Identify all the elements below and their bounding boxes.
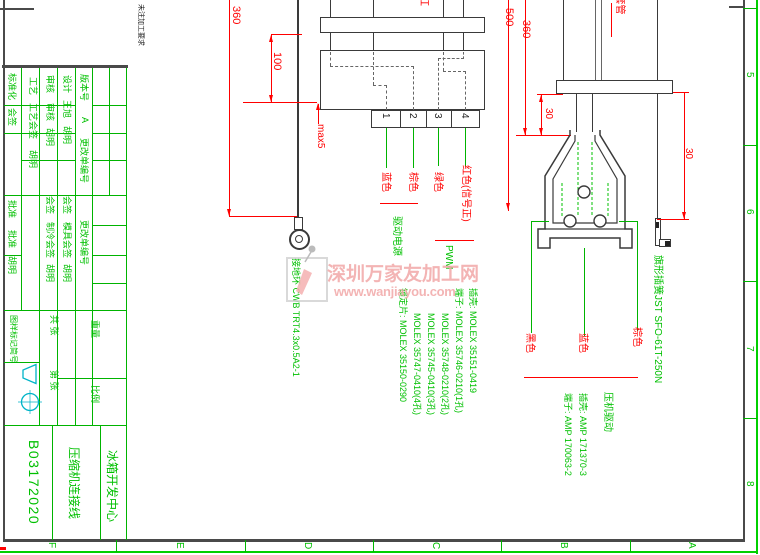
- drawing-number: B03172020: [27, 440, 41, 525]
- part-number: MOLEX 35747-0410(4孔): [412, 313, 421, 415]
- pin-number: 2: [407, 113, 417, 119]
- dim-label-30: 30: [683, 148, 693, 159]
- tb-total-sheets: 共 张: [49, 315, 58, 336]
- pin-divider: [451, 110, 452, 128]
- wire-color-label: 棕色: [631, 327, 641, 347]
- tb-countersign-label: 会签: [62, 196, 71, 214]
- sleeve-collar: [556, 80, 673, 94]
- part-number: 端子: AMP 170063-2: [563, 393, 572, 476]
- tb-h: [92, 283, 126, 284]
- tb-h: [57, 378, 126, 379]
- zone-letter: D: [302, 542, 312, 549]
- dim-line: [657, 219, 689, 220]
- part-number: MOLEX 35745-0410(3孔): [426, 313, 435, 415]
- routing-line: [438, 58, 439, 110]
- tb-v: [75, 68, 76, 425]
- projection-symbol-cone-icon: [18, 364, 42, 386]
- dim-label-360: 360: [230, 6, 241, 24]
- zone-number: 5: [744, 72, 754, 78]
- tb-design-label: 设计: [62, 75, 71, 93]
- zone-divider: [743, 8, 757, 9]
- routing-line: [386, 85, 387, 110]
- group-bracket: [435, 240, 474, 241]
- dim-arrow: [227, 209, 231, 216]
- routing-line: [330, 66, 414, 67]
- wire: [463, 33, 464, 51]
- lead: [386, 128, 387, 168]
- tb-sheet-no: 第 张: [49, 370, 58, 391]
- pin-number: 4: [459, 113, 469, 119]
- wire-color-label: 黑色: [524, 333, 534, 353]
- centering-tick-topright: [729, 6, 744, 8]
- routing-line: [443, 71, 466, 72]
- zone-number: 7: [744, 346, 754, 352]
- ground-wire: [297, 0, 299, 218]
- tb-name: 胡明: [7, 256, 16, 274]
- dim-line: [229, 216, 297, 217]
- tb-h: [4, 310, 126, 311]
- wire-color-label: 红色(信号正): [460, 165, 470, 222]
- tb-h: [92, 255, 126, 256]
- outer-border-right: [756, 0, 758, 554]
- tb-h: [92, 133, 126, 134]
- zone-number: 6: [744, 209, 754, 215]
- outer-border-bottom: [0, 551, 758, 553]
- watermark-text: 深圳万家友加工网: [327, 259, 479, 286]
- zone-letter: C: [430, 542, 440, 549]
- sleeve-inner-line: [595, 0, 596, 80]
- tb-h: [92, 225, 126, 226]
- routing-line: [443, 52, 444, 71]
- zone-divider: [630, 540, 631, 552]
- dim-line: [243, 102, 317, 103]
- wire: [373, 33, 374, 51]
- dim-arrow: [269, 35, 273, 42]
- dim-label-max5: max5: [315, 124, 325, 148]
- tb-v: [100, 425, 101, 540]
- zone-letter: F: [46, 542, 56, 548]
- tb-name: 胡明: [45, 128, 54, 146]
- dim-label-30: 30: [543, 108, 553, 119]
- frame-right: [743, 0, 745, 541]
- tb-cooling-countersign-label: 制冷会签: [45, 222, 54, 258]
- tb-approve-label: 批准: [7, 200, 16, 218]
- tb-name: 胡明: [62, 126, 71, 144]
- tb-h: [92, 160, 126, 161]
- wire: [443, 0, 444, 18]
- wire: [576, 94, 577, 132]
- dim-arrow: [539, 128, 543, 135]
- pin-divider: [400, 110, 401, 128]
- corner-mark: [0, 547, 6, 550]
- sleeve-inner-line: [601, 0, 602, 80]
- wire: [592, 94, 593, 132]
- dim-label-360: 360: [520, 20, 531, 38]
- group-label-compressor-drive: 压机驱动: [602, 392, 612, 432]
- routing-line: [438, 58, 464, 59]
- dim-label-100: 100: [271, 52, 282, 70]
- dim-line: [271, 34, 302, 35]
- part-number: 锁定片: MOLEX 35150-0290: [398, 288, 407, 402]
- dim-arrow: [682, 212, 686, 219]
- dim-arrow: [269, 95, 273, 102]
- tb-process-label: 工艺: [28, 77, 37, 95]
- label-leader: [611, 3, 612, 37]
- tb-weight-label: 重量: [90, 320, 99, 338]
- cad-drawing-sheet: 5 6 7 8 F E D C B A 标准化 会签 批准 批准 胡明 工艺 工…: [0, 0, 760, 555]
- process-note: 未注加工要求: [137, 4, 144, 46]
- dim-label-500: 500: [503, 8, 514, 26]
- lead: [413, 128, 414, 168]
- wire-color-label: 绿色: [432, 172, 442, 192]
- wire: [330, 33, 331, 51]
- zone-letter: B: [558, 542, 568, 549]
- tb-v: [126, 68, 127, 540]
- pin-divider: [426, 110, 427, 128]
- part-number: MOLEX 35748-0210(2孔): [440, 313, 449, 415]
- zone-divider: [743, 418, 757, 419]
- lead: [531, 221, 532, 333]
- wire-color-label: 蓝色: [577, 333, 587, 353]
- frame-bottom: [3, 539, 745, 542]
- dim-arrow: [539, 95, 543, 102]
- zone-divider: [743, 145, 757, 146]
- wire: [373, 0, 374, 18]
- routing-line: [373, 85, 387, 86]
- zone-divider: [373, 540, 374, 552]
- wire: [443, 33, 444, 51]
- org-name: 冰箱开发中心: [106, 450, 118, 522]
- tb-v: [52, 425, 53, 540]
- zone-divider: [245, 540, 246, 552]
- compressor-plug-housing: [536, 128, 638, 252]
- dim-line: [673, 92, 689, 93]
- pvc-sleeve-label: PVC套管: [614, 0, 624, 15]
- tb-v: [92, 68, 93, 425]
- lead: [531, 221, 549, 222]
- tb-name: 胡明: [28, 150, 37, 168]
- zone-divider: [116, 540, 117, 552]
- centering-tick-left: [0, 8, 34, 10]
- zone-number: 8: [744, 481, 754, 487]
- tb-standardization-label: 标准化: [7, 73, 16, 100]
- pin-number: 1: [380, 113, 390, 119]
- tb-change-order-label: 更改单编号: [79, 220, 88, 265]
- wire-color-label: 蓝色: [380, 172, 390, 192]
- tb-version-label: 版本号: [79, 74, 88, 101]
- wire: [330, 0, 331, 18]
- tb-countersign-label: 会签: [7, 108, 16, 126]
- tb-approve-label: 批准: [7, 230, 16, 248]
- tb-h: [92, 105, 126, 106]
- part-number: 插壳: MOLEX 35151-0419: [468, 288, 477, 393]
- frame-left: [3, 0, 5, 541]
- dim-arrow: [523, 128, 527, 135]
- tb-check-label: 审核: [45, 103, 54, 121]
- dim-line: [508, 0, 509, 211]
- lead: [438, 128, 439, 166]
- harness-wrap: [320, 17, 485, 33]
- zone-divider: [743, 281, 757, 282]
- lead: [584, 248, 585, 336]
- dim-line: [229, 0, 230, 217]
- tb-scale-label: 比例: [90, 385, 99, 403]
- tb-version-value: A: [80, 117, 89, 123]
- routing-line: [330, 52, 331, 66]
- watermark-url: www.wanjiayou.com: [334, 284, 456, 299]
- terminal-label: 旗形插簧JST SFO-61T-250N: [652, 255, 662, 383]
- zone-letter: A: [686, 542, 696, 549]
- routing-line: [373, 52, 374, 85]
- tb-designer-name: 王旭: [62, 100, 71, 118]
- tb-countersign-label: 会签: [45, 196, 54, 214]
- wire: [463, 0, 464, 18]
- lead: [465, 128, 466, 166]
- zone-letter: E: [174, 542, 184, 549]
- routing-line: [465, 71, 466, 110]
- group-bracket: [524, 377, 638, 378]
- tb-v: [109, 68, 110, 195]
- tb-name: 胡明: [45, 264, 54, 282]
- flag-terminal-detail: [665, 241, 670, 246]
- lead: [619, 221, 638, 222]
- tb-check-label: 审核: [45, 75, 54, 93]
- tb-mold-countersign-label: 模具会签: [62, 222, 71, 258]
- wire: [657, 94, 658, 220]
- part-number: 端子: MOLEX 35746-0210(1孔): [454, 288, 463, 413]
- pin-number: 3: [432, 113, 442, 119]
- projection-symbol-circle-icon: [18, 390, 42, 414]
- clipped-label-fragment: 红: [418, 0, 428, 6]
- tb-name: 胡明: [62, 264, 71, 282]
- tb-h: [4, 425, 126, 426]
- flag-terminal-detail: [656, 222, 659, 228]
- dim-arrow: [506, 203, 510, 210]
- wire-color-label: 棕色: [407, 172, 417, 192]
- routing-line: [413, 66, 414, 110]
- group-label-drive-power: 驱动电源: [391, 216, 401, 256]
- connector-body: [320, 50, 485, 110]
- drawing-title: 压缩机连接线: [68, 447, 80, 519]
- tb-change-order-label: 更改单编号: [79, 138, 88, 183]
- group-bracket: [380, 203, 418, 204]
- tb-process-countersign-label: 工艺会签: [28, 103, 37, 139]
- zone-divider: [501, 540, 502, 552]
- part-number: 插壳: AMP 171370-3: [578, 393, 587, 476]
- lead: [637, 221, 638, 331]
- tb-mark-label: 图样标记简号: [9, 315, 17, 363]
